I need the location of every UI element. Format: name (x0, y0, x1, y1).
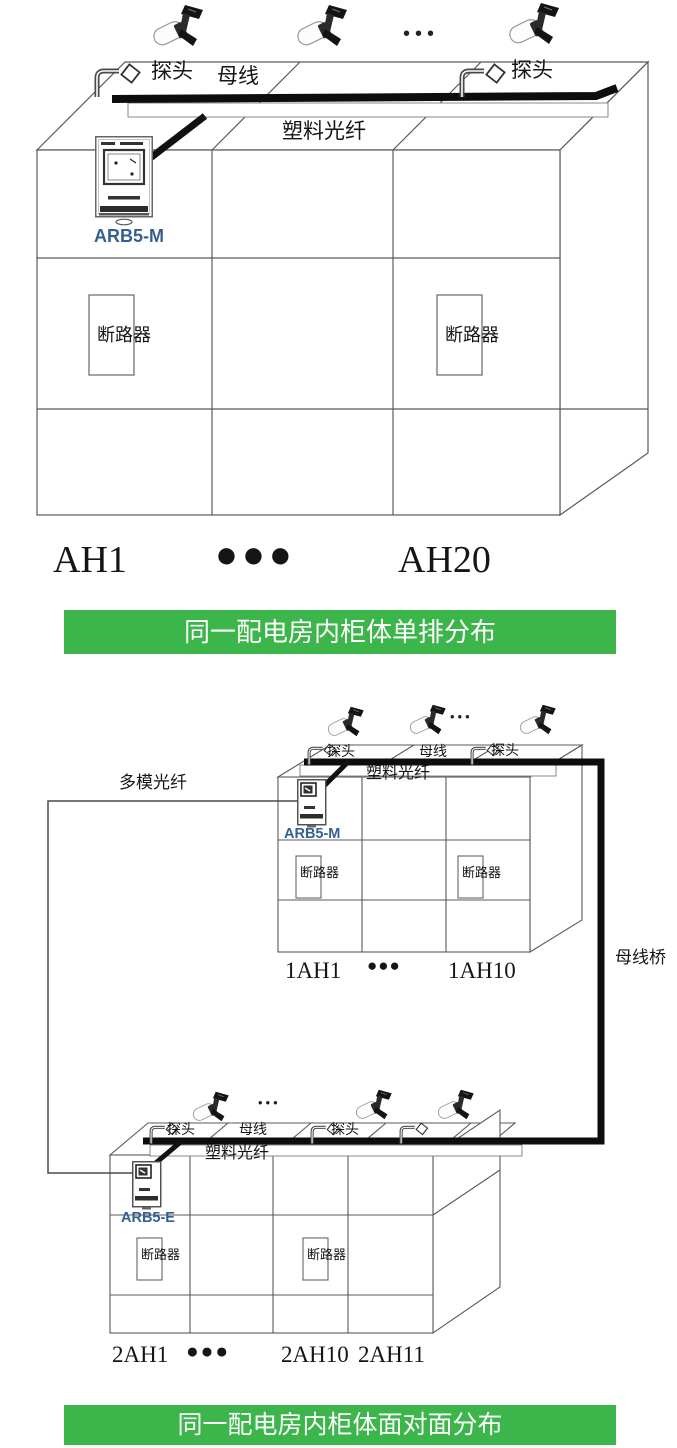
fiber-sensor-icon (507, 3, 559, 46)
cabinet-id-label: AH20 (398, 541, 491, 581)
cabinet-ellipsis: ●●● (186, 1340, 230, 1362)
breaker-label: 断路器 (141, 1248, 180, 1262)
fiber-sensor-icon (191, 1092, 228, 1123)
cabinet-id-label: 2AH10 (281, 1343, 349, 1367)
busbar-label: 母线 (239, 1122, 267, 1137)
probe-label: 探头 (327, 744, 355, 759)
arb5-m-device-icon (298, 780, 326, 828)
plastic-fiber-label: 塑料光纤 (366, 766, 430, 783)
plastic-fiber-label: 塑料光纤 (282, 121, 366, 143)
probe-label: 探头 (491, 743, 519, 758)
busbar-duct (128, 103, 608, 117)
fiber-sensor-icon (326, 707, 363, 738)
probe-label: 探头 (151, 61, 193, 83)
arb5-e-device-icon (133, 1162, 161, 1210)
plastic-fiber-label: 塑料光纤 (205, 1146, 269, 1163)
section-title-banner: 同一配电房内柜体单排分布 (64, 610, 616, 654)
distribution-room-diagram-page: ••• 探头 母线 探头 塑料光纤 ARB5-M 断路器 断路器 AH1 ●●●… (0, 0, 677, 1448)
device-label: ARB5-M (284, 827, 340, 842)
breaker-label: 断路器 (307, 1248, 346, 1262)
breaker-label: 断路器 (300, 866, 339, 880)
arb5-m-device-icon (96, 137, 153, 225)
multimode-fiber-label: 多模光纤 (119, 774, 187, 792)
sensor-ellipsis: ••• (450, 710, 473, 724)
cabinet-ellipsis: ●●● (215, 536, 296, 576)
device-label: ARB5-M (94, 227, 164, 246)
cabinet-id-label: 1AH10 (448, 959, 516, 983)
breaker-label: 断路器 (97, 326, 151, 345)
breaker-label: 断路器 (445, 326, 499, 345)
probe-label: 探头 (167, 1122, 195, 1137)
cabinet-id-label: 2AH11 (358, 1343, 425, 1367)
busbar-label: 母线 (217, 66, 259, 88)
busbar-label: 母线 (419, 744, 447, 759)
fiber-sensor-icons (151, 3, 559, 48)
sensor-ellipsis: ••• (258, 1096, 281, 1110)
fiber-sensor-icon (151, 5, 203, 48)
fiber-sensor-icon (295, 5, 347, 48)
multimode-fiber-line (48, 801, 297, 1173)
fiber-sensor-icon (436, 1090, 473, 1121)
fiber-sensor-icon (518, 705, 555, 736)
probe-label: 探头 (511, 60, 553, 82)
fiber-sensor-icon (354, 1090, 391, 1121)
cabinet-id-label: 2AH1 (112, 1343, 168, 1367)
cabinet-ellipsis: ●●● (367, 957, 401, 975)
probe-label: 探头 (331, 1122, 359, 1137)
sensor-ellipsis: ••• (403, 24, 439, 45)
cabinet-id-label: 1AH1 (285, 959, 341, 983)
section-title-banner: 同一配电房内柜体面对面分布 (64, 1405, 616, 1445)
fiber-sensor-icon (408, 705, 445, 736)
diagram-linework (0, 0, 677, 1448)
busbar-bridge-label: 母线桥 (615, 949, 666, 967)
breaker-label: 断路器 (462, 866, 501, 880)
device-label: ARB5-E (121, 1211, 175, 1226)
cabinet-id-label: AH1 (53, 541, 127, 581)
